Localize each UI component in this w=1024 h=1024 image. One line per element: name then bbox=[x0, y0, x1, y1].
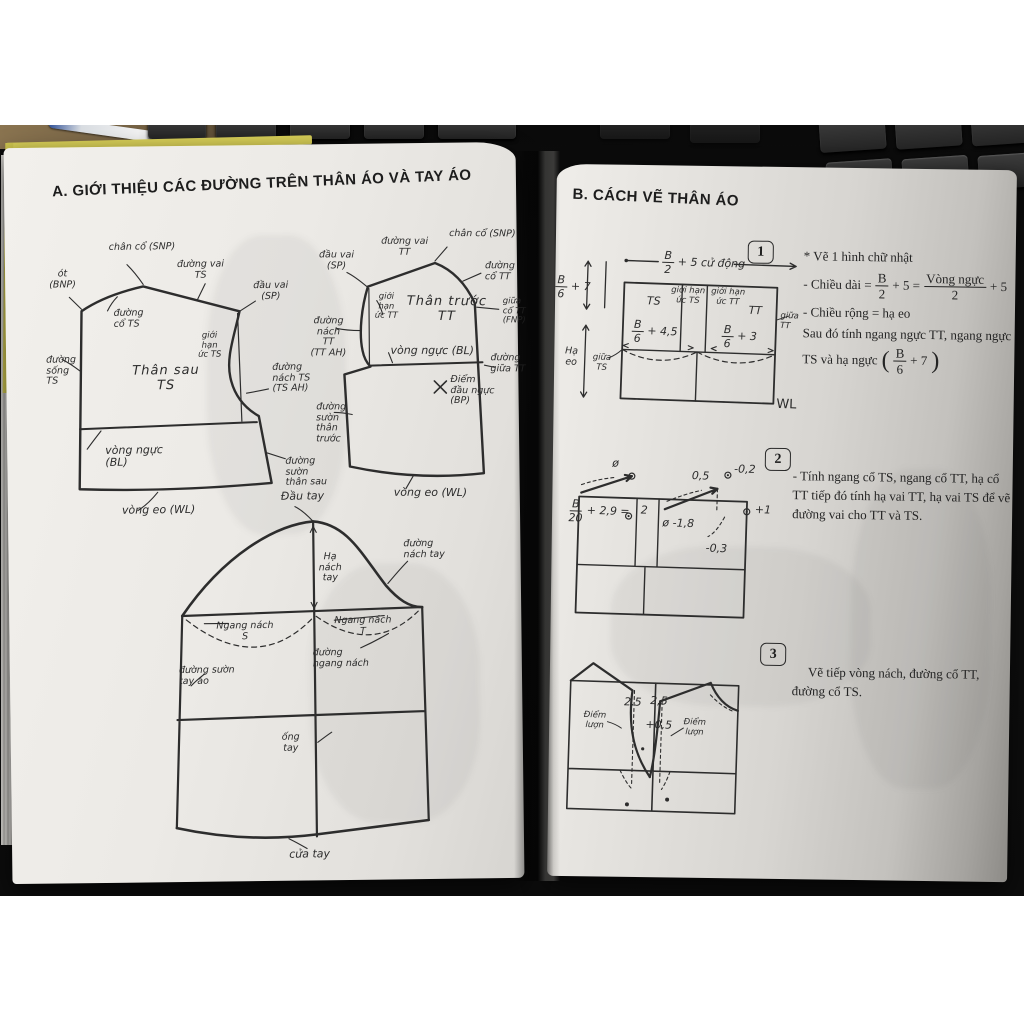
label-plus05: +0,5 bbox=[645, 719, 672, 732]
label-underarm-line: đường ngang nách bbox=[313, 648, 369, 670]
fraction: Vòng ngực2 bbox=[924, 272, 986, 302]
label-neck-line: đường cổ TS bbox=[113, 308, 143, 330]
keyboard-key bbox=[970, 125, 1024, 146]
back-shoulder bbox=[571, 663, 634, 691]
dimension-suffix: + 4,5 bbox=[647, 326, 678, 339]
step1-text-line4: Sau đó tính ngang ngực TT, ngang ngực bbox=[803, 324, 1015, 346]
text-run: + 5 = bbox=[892, 276, 920, 295]
label-piece-name: Thân sau TS bbox=[132, 364, 200, 394]
step2-diagram: B20 + 2,9 = ø 2 ø -1,8 0,5 -0,2 +1 -0,3 bbox=[563, 454, 783, 636]
step2-text: - Tính ngang cổ TS, ngang cổ TT, hạ cổ T… bbox=[792, 467, 1015, 527]
keyboard-key bbox=[818, 125, 886, 153]
step1-text-line5: TS và hạ ngực ( B6 + 7 ) bbox=[802, 345, 1014, 377]
leader-lines bbox=[334, 246, 499, 489]
label-side-seam: đường sườn thân trước bbox=[316, 402, 346, 445]
fraction-denominator: 2 bbox=[952, 287, 959, 301]
fraction-denominator: 6 bbox=[723, 337, 730, 349]
label-cap-curve: đường nách tay bbox=[403, 539, 445, 561]
label-center-back: đường sống TS bbox=[46, 355, 76, 387]
label-neck-base: chân cổ (SNP) bbox=[449, 229, 516, 240]
fraction-denominator: 6 bbox=[634, 332, 641, 344]
label-back-piece: TS bbox=[647, 295, 661, 308]
label-nape: ót (BNP) bbox=[49, 269, 76, 291]
label-left25: 2,5 bbox=[624, 696, 642, 709]
label-neck-line: đường cổ TT bbox=[485, 261, 515, 282]
fraction-numerator: B bbox=[632, 319, 644, 332]
label-armhole: đường nách TS (TS AH) bbox=[272, 362, 310, 394]
step3-diagram: 2,5 2,5 +0,5 Điểm lượn Điểm lượn bbox=[556, 650, 761, 831]
label-bust-line: vòng ngực (BL) bbox=[391, 345, 474, 358]
fraction-numerator: B bbox=[570, 498, 582, 511]
label-angle-front: ø -1,8 bbox=[662, 517, 694, 530]
bust-line bbox=[80, 422, 257, 429]
chest-limit-line bbox=[238, 313, 242, 421]
paren-open: ( bbox=[881, 348, 889, 372]
label-bust-point: Điểm đầu ngực (BP) bbox=[450, 375, 494, 407]
step-number-3: 3 bbox=[760, 643, 786, 666]
dimension-suffix: + 2,9 = bbox=[587, 505, 630, 519]
dimension-suffix: + 3 bbox=[737, 331, 757, 344]
label-chest-limit: giới hạn ức TS bbox=[198, 332, 222, 361]
keyboard-key bbox=[600, 125, 670, 139]
fraction: B2 bbox=[875, 271, 888, 300]
label-underarm-front: Ngang nách T bbox=[334, 615, 391, 637]
sleeve-diagram: Đầu tay Hạ nách tay đường nách tay Ngang… bbox=[163, 495, 470, 877]
label-half: 0,5 bbox=[692, 470, 710, 483]
label-shoulder-line: đường vai TS bbox=[177, 259, 224, 281]
label-center-back: giữa TS bbox=[592, 353, 611, 373]
label-chest-limit: giới hạn ức TT bbox=[375, 293, 398, 322]
fraction-numerator: Vòng ngực bbox=[924, 272, 986, 288]
left-page-title: A. GIỚI THIỆU CÁC ĐƯỜNG TRÊN THÂN ÁO VÀ … bbox=[52, 167, 472, 201]
fraction: B2 bbox=[662, 250, 674, 275]
label-neck-width: B20 + 2,9 = bbox=[568, 498, 630, 525]
label-waist-line: WL bbox=[776, 398, 797, 413]
dim-dot bbox=[624, 259, 628, 263]
step1-diagram: B2 + 5 cử động B6 + 7 Hạ eo giữa TS TS g… bbox=[563, 246, 811, 429]
label-bust-line: vòng ngực (BL) bbox=[105, 444, 163, 469]
label-cap-height: Hạ nách tay bbox=[318, 552, 341, 584]
label-curve-point-left: Điểm lượn bbox=[583, 711, 606, 731]
step1-text-line3: - Chiều rộng = hạ eo bbox=[803, 303, 1015, 325]
keyboard-key bbox=[438, 125, 516, 139]
fraction-denominator: 2 bbox=[664, 263, 671, 275]
fraction: B20 bbox=[568, 498, 583, 523]
label-side-seam: đường sườn thân sau bbox=[285, 456, 327, 488]
photo-area: A. GIỚI THIỆU CÁC ĐƯỜNG TRÊN THÂN ÁO VÀ … bbox=[0, 125, 1024, 896]
keyboard-key bbox=[690, 125, 760, 143]
fraction-numerator: B bbox=[662, 250, 674, 263]
label-neck-base: chân cổ (SNP) bbox=[109, 242, 176, 253]
bust-line bbox=[370, 362, 482, 367]
photo-of-open-book: A. GIỚI THIỆU CÁC ĐƯỜNG TRÊN THÂN ÁO VÀ … bbox=[0, 0, 1024, 1024]
label-armhole: đường nách TT (TT AH) bbox=[310, 316, 346, 359]
text-run: TS và hạ ngực bbox=[802, 350, 878, 370]
label-limit-back: giới hạn ức TS bbox=[671, 286, 706, 306]
label-plus1: +1 bbox=[755, 504, 772, 517]
back-bodice-diagram: chân cổ (SNP) đường vai TS ót (BNP) đườn… bbox=[47, 244, 342, 523]
label-curve-point-right: Điểm lượn bbox=[683, 718, 706, 738]
step1-text-line2: - Chiều dài = B2 + 5 = Vòng ngực2 + 5 bbox=[803, 270, 1015, 302]
label-underarm-back: Ngang nách S bbox=[216, 621, 273, 643]
fraction-denominator: 20 bbox=[568, 511, 582, 523]
label-front-piece: TT bbox=[748, 305, 762, 318]
label-front-width: B6 + 3 bbox=[721, 324, 757, 350]
step2-line-art bbox=[563, 454, 783, 636]
text-run: + 7 bbox=[910, 351, 927, 370]
label-angle-back: ø bbox=[612, 458, 619, 471]
label-right25: 2,5 bbox=[650, 695, 668, 708]
fraction: B6 bbox=[631, 319, 643, 344]
fraction-denominator: 2 bbox=[879, 286, 886, 300]
book-gutter-shadow bbox=[514, 151, 560, 881]
label-shoulder-line: đường vai TT bbox=[381, 237, 428, 258]
text-run: + 5 bbox=[990, 278, 1007, 297]
label-cuff: cửa tay bbox=[289, 848, 330, 861]
keyboard-key bbox=[148, 125, 206, 139]
label-minus03: -0,3 bbox=[705, 543, 727, 556]
label-sleeve-tube: ống tay bbox=[282, 733, 300, 754]
keyboard-key bbox=[364, 125, 424, 139]
label-cap: Đầu tay bbox=[281, 490, 324, 503]
label-drop-waist: Hạ eo bbox=[564, 346, 578, 368]
right-page-title: B. CÁCH VẼ THÂN ÁO bbox=[572, 186, 739, 210]
sleeve-cap-curve bbox=[181, 520, 422, 616]
label-shoulder-tip: đầu vai (SP) bbox=[253, 281, 288, 303]
text-run: - Chiều dài = bbox=[803, 275, 872, 295]
paren-close: ) bbox=[931, 349, 939, 373]
fraction: B6 bbox=[721, 324, 733, 349]
label-limit-front: giới hạn ức TT bbox=[711, 287, 746, 307]
step1-text-line1: * Vẽ 1 hình chữ nhật bbox=[804, 247, 1016, 269]
label-minus02: -0,2 bbox=[734, 463, 756, 476]
step3-text: Vẽ tiếp vòng nách, đường cổ TT, đường cổ… bbox=[792, 663, 1005, 704]
right-page: B. CÁCH VẼ THÂN ÁO 1 B2 + 5 cử động B6 +… bbox=[547, 164, 1017, 882]
dimension-suffix: + 7 bbox=[571, 281, 591, 294]
label-shoulder-tip: đầu vai (SP) bbox=[319, 250, 354, 271]
label-left-dimension: B6 + 7 bbox=[555, 274, 591, 300]
step1-text: * Vẽ 1 hình chữ nhật - Chiều dài = B2 + … bbox=[802, 247, 1016, 376]
cuff-curve bbox=[177, 820, 429, 839]
point-dot bbox=[641, 747, 644, 750]
label-piece-name: Thân trước TT bbox=[407, 295, 487, 325]
point-dot bbox=[727, 474, 729, 476]
label-two: 2 bbox=[641, 504, 648, 517]
point-dot bbox=[625, 802, 629, 806]
fraction-numerator: B bbox=[876, 271, 889, 286]
dimension-suffix: + 5 cử động bbox=[678, 257, 746, 272]
front-bodice-diagram: đầu vai (SP) đường vai TT chân cổ (SNP) … bbox=[322, 234, 544, 525]
point-dot bbox=[665, 798, 669, 802]
bust-point-x bbox=[434, 381, 446, 393]
keyboard-key bbox=[894, 125, 962, 150]
fraction-numerator: B bbox=[722, 324, 734, 337]
fraction-denominator: 6 bbox=[896, 361, 903, 375]
fraction-numerator: B bbox=[894, 346, 907, 361]
label-back-width: B6 + 4,5 bbox=[631, 319, 678, 346]
bust-curves-dashed bbox=[620, 349, 775, 403]
step3-line-art bbox=[556, 650, 761, 831]
chest-limit-line bbox=[368, 289, 369, 365]
label-side-seam: đường sườn tay áo bbox=[179, 665, 235, 687]
label-top-dimension: B2 + 5 cử động bbox=[662, 250, 746, 278]
fraction: B6 bbox=[893, 346, 906, 375]
left-page: A. GIỚI THIỆU CÁC ĐƯỜNG TRÊN THÂN ÁO VÀ … bbox=[4, 142, 525, 884]
